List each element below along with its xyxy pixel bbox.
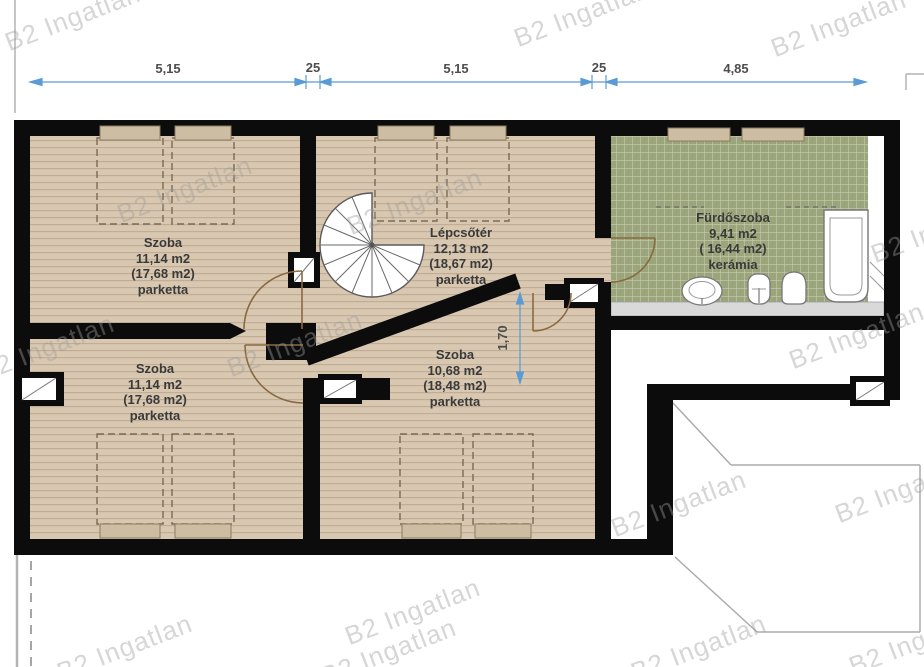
room-label-lepcsoter: Lépcsőtér 12,13 m2 (18,67 m2) parketta <box>429 225 493 287</box>
dim-label-1: 5,15 <box>155 62 180 76</box>
bidet <box>748 274 770 304</box>
room-label-szoba-bottom-left: Szoba 11,14 m2 (17,68 m2) parketta <box>123 361 187 423</box>
roof-outline <box>673 403 920 632</box>
room-label-szoba-top-left: Szoba 11,14 m2 (17,68 m2) parketta <box>131 235 195 297</box>
washbasin <box>682 277 722 305</box>
shower-step-hatch <box>870 262 884 290</box>
room-label-furdoszoba: Fürdőszoba 9,41 m2 ( 16,44 m2) kerámia <box>696 210 770 272</box>
dim-label-3: 5,15 <box>443 62 468 76</box>
room-label-szoba-bottom-center: Szoba 10,68 m2 (18,48 m2) parketta <box>423 347 487 409</box>
dim-label-4: 25 <box>592 61 606 75</box>
dim-label-2: 25 <box>306 61 320 75</box>
bath-threshold <box>611 302 884 316</box>
dimension-line-top <box>30 75 866 89</box>
bathtub <box>824 210 868 302</box>
dim-label-5: 4,85 <box>723 62 748 76</box>
dim-label-vertical: 1,70 <box>496 325 510 350</box>
floor-plan-sheet: 5,15 25 5,15 25 4,85 1,70 Szoba 11,14 m2… <box>0 0 924 667</box>
toilet <box>782 272 806 304</box>
floor-plan-drawing <box>0 0 924 667</box>
